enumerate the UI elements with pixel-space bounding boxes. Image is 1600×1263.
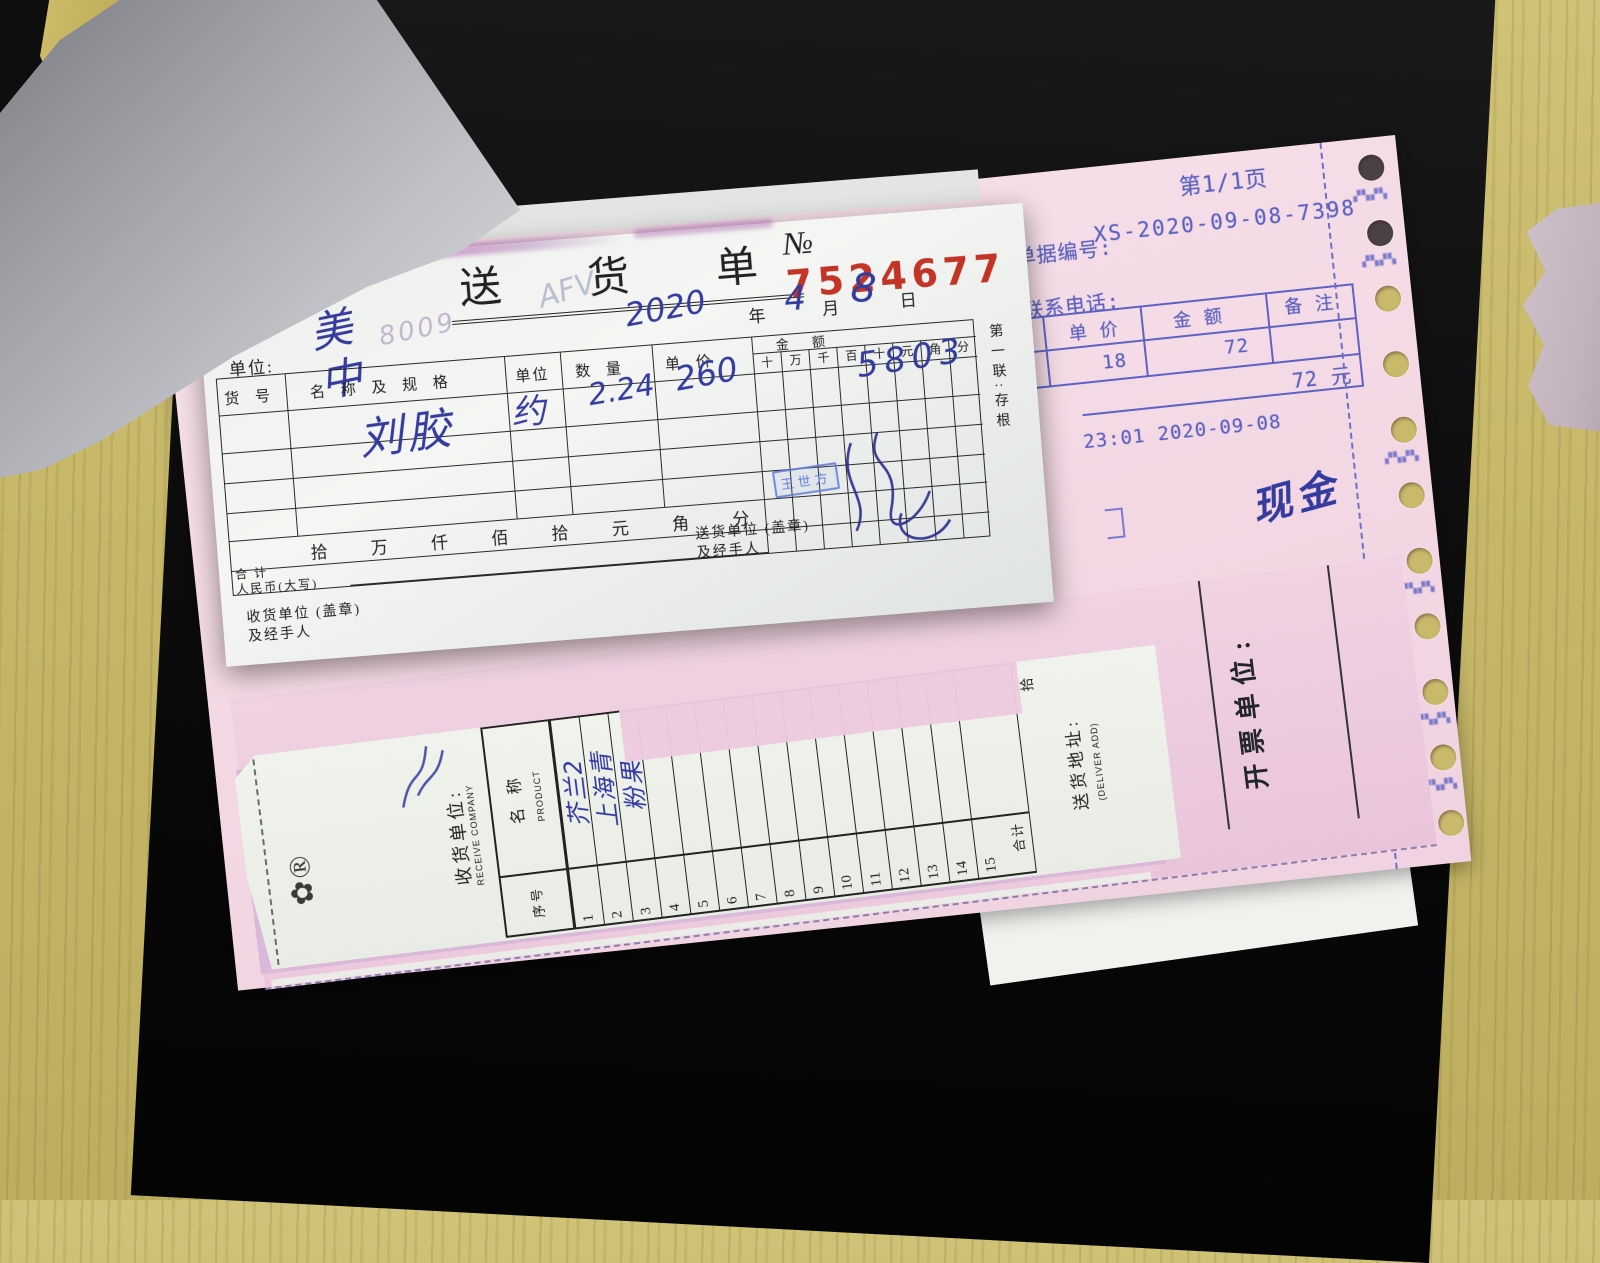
col-unit-header: 单位 <box>515 363 551 387</box>
photo-desk-scene: { "colors": { "wood": "#c3b466", "surfac… <box>0 0 1600 1200</box>
signature <box>823 405 964 555</box>
tractor-hole <box>1382 350 1411 379</box>
col-amount-header: 金 额 <box>1172 302 1224 333</box>
col-note-header: 备 注 <box>1283 288 1335 319</box>
tractor-hole <box>1374 284 1403 313</box>
caps-amount-row: 拾万仟佰拾元角分 <box>310 504 751 563</box>
deliver-address-label: 送货地址: <box>1057 717 1093 812</box>
day-label: 日 <box>899 286 918 312</box>
table-line <box>651 345 665 507</box>
cash-handwriting: 现金 <box>1244 455 1346 534</box>
timestamp: 23:01 2020-09-08 <box>1082 411 1282 454</box>
brand-logo: ✿® <box>269 839 334 919</box>
tractor-hole <box>1405 546 1434 575</box>
issuer-label: 开票单位: <box>1219 631 1275 792</box>
torn-paper-scrap <box>1518 202 1600 432</box>
tractor-hole <box>1421 678 1450 707</box>
flower-logo-icon: ✿® <box>281 852 322 908</box>
page-indicator: 第1/1页 <box>1177 161 1269 202</box>
margin-print-mark: ▞▚▞▚ <box>1362 254 1398 269</box>
seq-header: 序号 <box>525 885 548 919</box>
month-label: 月 <box>821 294 840 320</box>
name-header-en: PRODUCT <box>530 770 546 822</box>
seq-header-cell: 序号 <box>500 868 573 936</box>
tractor-hole <box>1390 415 1419 444</box>
year-label: 年 <box>747 301 766 327</box>
name-header: 名 称 <box>499 772 529 826</box>
total-caps-label: 合 计 人民币(大写) <box>235 561 319 597</box>
ink-bleed: 8009 <box>376 307 459 352</box>
tractor-hole <box>1413 612 1442 641</box>
total-label: 合计 <box>1006 821 1029 853</box>
amount-value: 72 <box>1223 334 1250 358</box>
tractor-hole <box>1366 219 1395 248</box>
issuer-field: 开票单位: <box>1209 589 1284 833</box>
field-border <box>1327 565 1360 818</box>
deliver-address-en: (DELIVER ADD) <box>1088 722 1107 801</box>
day-handwriting: 8 <box>849 265 877 312</box>
no-symbol: № <box>782 223 815 261</box>
tractor-hole <box>1437 809 1466 838</box>
table-line <box>560 353 574 515</box>
receiver-seal-label: 收货单位 (盖章) 及经手人 <box>246 600 363 647</box>
table-line <box>808 349 825 548</box>
margin-print-mark: ▞▚▞▚ <box>1384 450 1420 465</box>
tractor-hole <box>1397 481 1426 510</box>
partial-stamp-bracket <box>1105 508 1126 540</box>
deliver-address-field: 送货地址: (DELIVER ADD) <box>1045 657 1130 869</box>
item-unit-handwriting: 约 <box>509 383 547 435</box>
copy-label: 第一联:存根 <box>984 323 1020 524</box>
table-line <box>285 374 299 536</box>
margin-print-mark: ▞▚▞▚ <box>1353 188 1389 203</box>
no-value: 7524677 <box>784 245 1007 306</box>
item-name-handwriting: 刘胶 <box>355 392 459 468</box>
tractor-hole <box>1429 743 1458 772</box>
price-value: 18 <box>1101 349 1128 373</box>
col-item-header: 货 号 <box>224 384 277 409</box>
doc-number-value: XS-2020-09-08-7398 <box>1093 196 1358 247</box>
sender-seal-label: 送货单位 (盖章) 及经手人 <box>695 517 812 564</box>
tractor-hole <box>1357 153 1386 182</box>
month-handwriting: 4 <box>783 278 808 320</box>
table-line <box>1351 283 1364 387</box>
col-price-header: 单 价 <box>1068 315 1120 346</box>
